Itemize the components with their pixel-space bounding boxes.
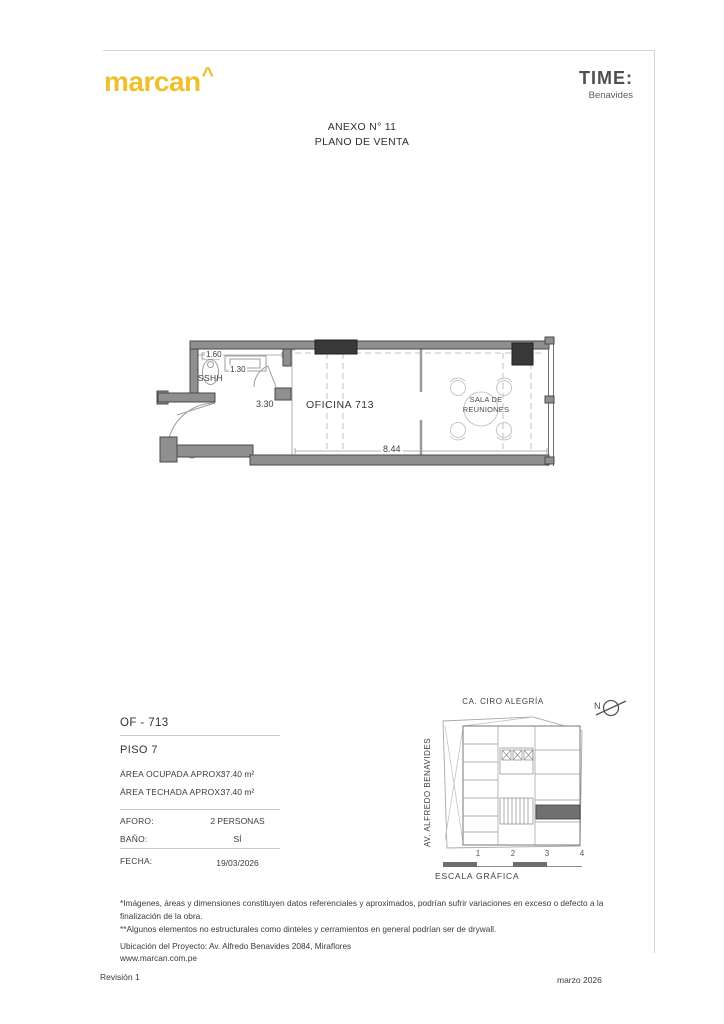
scale-tick-4: 4 <box>577 849 587 858</box>
document-title: ANEXO N° 11 PLANO DE VENTA <box>187 120 537 150</box>
area-techada-value: 37.40 m² <box>195 787 280 797</box>
marcan-logo-caret-icon: ^ <box>202 64 214 87</box>
fecha-value: 19/03/2026 <box>195 858 280 868</box>
page-top-rule <box>103 50 655 51</box>
bano-label: BAÑO: <box>120 834 147 844</box>
aforo-label: AFORO: <box>120 816 154 826</box>
meeting-room-label: SALA DE REUNIONES <box>450 395 522 414</box>
dimension-8-44: 8.44 <box>381 444 403 454</box>
office-label: OFICINA 713 <box>290 399 390 411</box>
north-letter: N <box>594 701 601 711</box>
meeting-room-label-line1: SALA DE <box>450 395 522 405</box>
info-divider <box>120 848 280 849</box>
marcan-logo-text: marcan <box>104 66 201 97</box>
site-plan <box>438 712 593 852</box>
bathroom-label: SSHH <box>198 373 223 383</box>
document-date: marzo 2026 <box>557 975 602 985</box>
time-logo-text: TIME: <box>455 68 633 89</box>
info-divider <box>120 809 280 810</box>
dimension-1-60: 1.60 <box>205 350 223 359</box>
bano-value: SÍ <box>195 834 280 844</box>
time-benavides-logo: TIME: Benavides <box>455 68 633 101</box>
anexo-line: ANEXO N° 11 <box>187 120 537 135</box>
floor-number: PISO 7 <box>120 744 158 756</box>
dimension-1-30: 1.30 <box>229 365 247 374</box>
area-ocupada-value: 37.40 m² <box>195 769 280 779</box>
scale-tick-3: 3 <box>542 849 552 858</box>
time-logo-subtext: Benavides <box>455 90 633 101</box>
project-location: Ubicación del Proyecto: Av. Alfredo Bena… <box>120 940 632 953</box>
marcan-logo: marcan^ <box>104 66 212 98</box>
website-url: www.marcan.com.pe <box>120 952 632 965</box>
disclaimer-note-2: **Algunos elementos no estructurales com… <box>120 923 632 936</box>
page-right-rule <box>654 50 655 953</box>
north-arrow-icon: N <box>588 694 628 722</box>
street-name-left: AV. ALFREDO BENAVIDES <box>423 733 437 851</box>
scale-bar-segment <box>443 862 477 867</box>
plano-line: PLANO DE VENTA <box>187 135 537 150</box>
dimension-3-30: 3.30 <box>256 399 274 409</box>
scale-tick-2: 2 <box>508 849 518 858</box>
scale-bar-segment <box>513 862 547 867</box>
scale-tick-1: 1 <box>473 849 483 858</box>
disclaimer-note-1: *Imágenes, áreas y dimensiones constituy… <box>120 897 632 922</box>
revision-label: Revisión 1 <box>100 972 140 982</box>
graphic-scale-bar <box>443 862 582 867</box>
meeting-room-label-line2: REUNIONES <box>450 405 522 415</box>
highlighted-unit <box>536 805 580 819</box>
aforo-value: 2 PERSONAS <box>195 816 280 826</box>
info-divider <box>120 735 280 736</box>
scale-label: ESCALA GRÁFICA <box>435 871 519 881</box>
unit-code: OF - 713 <box>120 717 169 729</box>
street-name-top: CA. CIRO ALEGRÍA <box>428 697 578 706</box>
fecha-label: FECHA: <box>120 856 152 866</box>
